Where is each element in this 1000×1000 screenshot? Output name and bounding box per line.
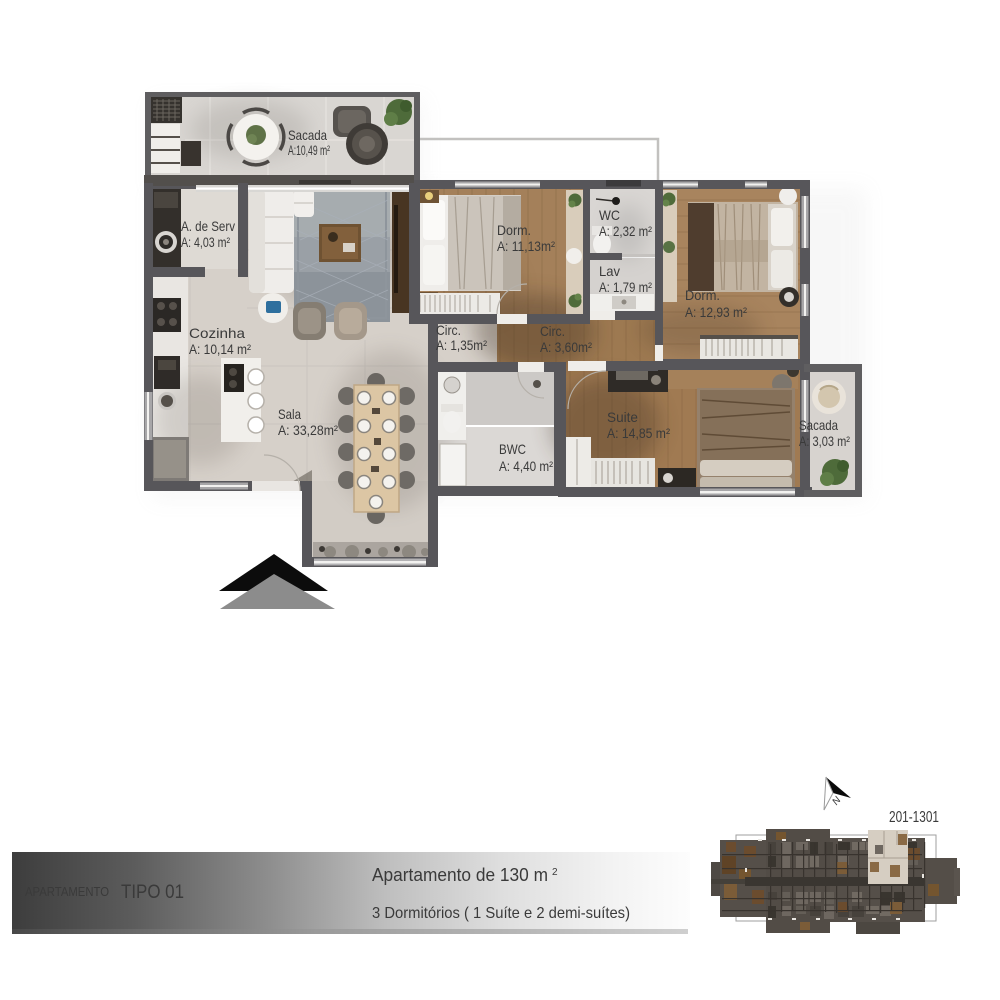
svg-text:A: 2,32 m²: A: 2,32 m²: [599, 224, 652, 239]
svg-text:A: 1,79 m²: A: 1,79 m²: [599, 280, 652, 295]
svg-text:Circ.: Circ.: [540, 323, 565, 339]
svg-text:Sacada: Sacada: [799, 417, 838, 433]
svg-text:3 Dormitórios ( 1 Suíte e 2 de: 3 Dormitórios ( 1 Suíte e 2 demi-suítes): [372, 905, 630, 922]
svg-text:TIPO 01: TIPO 01: [121, 881, 184, 903]
svg-text:2: 2: [552, 867, 558, 878]
svg-text:Dorm.: Dorm.: [497, 222, 531, 238]
svg-text:A:10,49 m²: A:10,49 m²: [288, 143, 330, 158]
svg-text:Suite: Suite: [607, 409, 638, 425]
svg-text:A: 33,28m²: A: 33,28m²: [278, 423, 338, 438]
svg-text:A: 3,03 m²: A: 3,03 m²: [799, 434, 850, 449]
svg-text:A: 1,35m²: A: 1,35m²: [436, 338, 487, 353]
svg-text:A: 14,85 m²: A: 14,85 m²: [607, 426, 670, 441]
svg-text:Dorm.: Dorm.: [685, 287, 720, 303]
svg-text:201-1301: 201-1301: [889, 809, 939, 826]
svg-text:A. de Serv: A. de Serv: [181, 218, 235, 234]
svg-text:A: 3,60m²: A: 3,60m²: [540, 340, 592, 355]
svg-text:Circ.: Circ.: [436, 322, 461, 338]
svg-text:APARTAMENTO: APARTAMENTO: [25, 885, 109, 899]
svg-text:A: 10,14 m²: A: 10,14 m²: [189, 342, 251, 357]
svg-text:Cozinha: Cozinha: [189, 325, 245, 341]
svg-text:Lav: Lav: [599, 263, 620, 279]
svg-text:WC: WC: [599, 207, 620, 223]
svg-text:A: 11,13m²: A: 11,13m²: [497, 239, 555, 254]
svg-text:Sacada: Sacada: [288, 127, 327, 143]
svg-text:A: 4,40 m²: A: 4,40 m²: [499, 459, 553, 474]
svg-text:A: 4,03 m²: A: 4,03 m²: [181, 235, 230, 250]
svg-text:BWC: BWC: [499, 441, 526, 457]
svg-text:Apartamento de 130 m: Apartamento de 130 m: [372, 865, 548, 885]
svg-text:A: 12,93 m²: A: 12,93 m²: [685, 305, 747, 320]
svg-text:Sala: Sala: [278, 406, 301, 422]
